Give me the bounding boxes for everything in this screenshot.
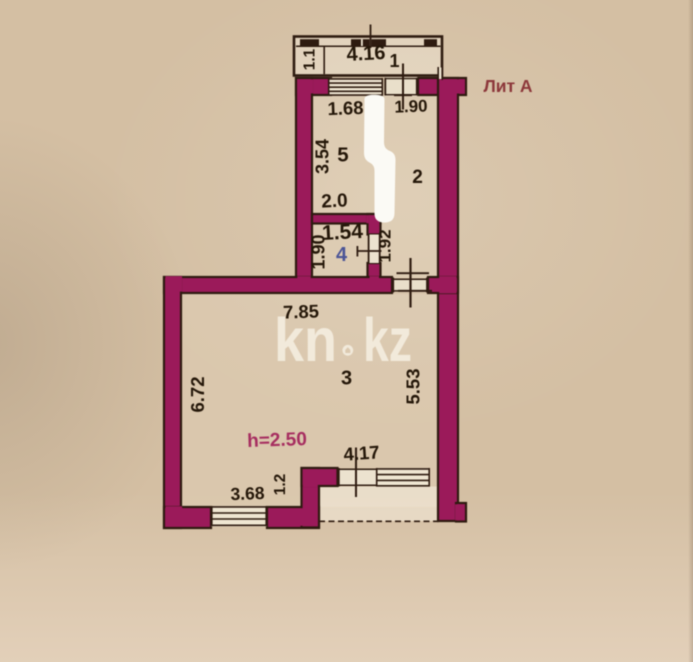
- svg-text:kn: kn: [274, 306, 337, 375]
- svg-text:2: 2: [412, 167, 423, 188]
- svg-text:4.16: 4.16: [346, 42, 386, 66]
- svg-text:1.90: 1.90: [394, 96, 428, 116]
- svg-text:1.2: 1.2: [272, 474, 289, 496]
- svg-text:Лит А: Лит А: [483, 76, 532, 96]
- svg-text:3: 3: [341, 368, 352, 390]
- svg-text:4: 4: [336, 244, 348, 266]
- svg-text:h=2.50: h=2.50: [247, 429, 307, 452]
- svg-text:1.68: 1.68: [327, 97, 364, 119]
- svg-text:5: 5: [337, 144, 348, 167]
- svg-text:1.1: 1.1: [302, 48, 319, 70]
- svg-text:1: 1: [389, 51, 399, 71]
- svg-text:1.90: 1.90: [309, 234, 329, 269]
- svg-text:2.0: 2.0: [321, 190, 348, 212]
- svg-text:3.68: 3.68: [230, 483, 265, 504]
- svg-text:4.17: 4.17: [343, 441, 380, 464]
- svg-text:6.72: 6.72: [187, 376, 208, 412]
- svg-text:1.92: 1.92: [376, 229, 395, 262]
- svg-text:kz: kz: [363, 306, 412, 375]
- svg-text:3.54: 3.54: [313, 139, 333, 174]
